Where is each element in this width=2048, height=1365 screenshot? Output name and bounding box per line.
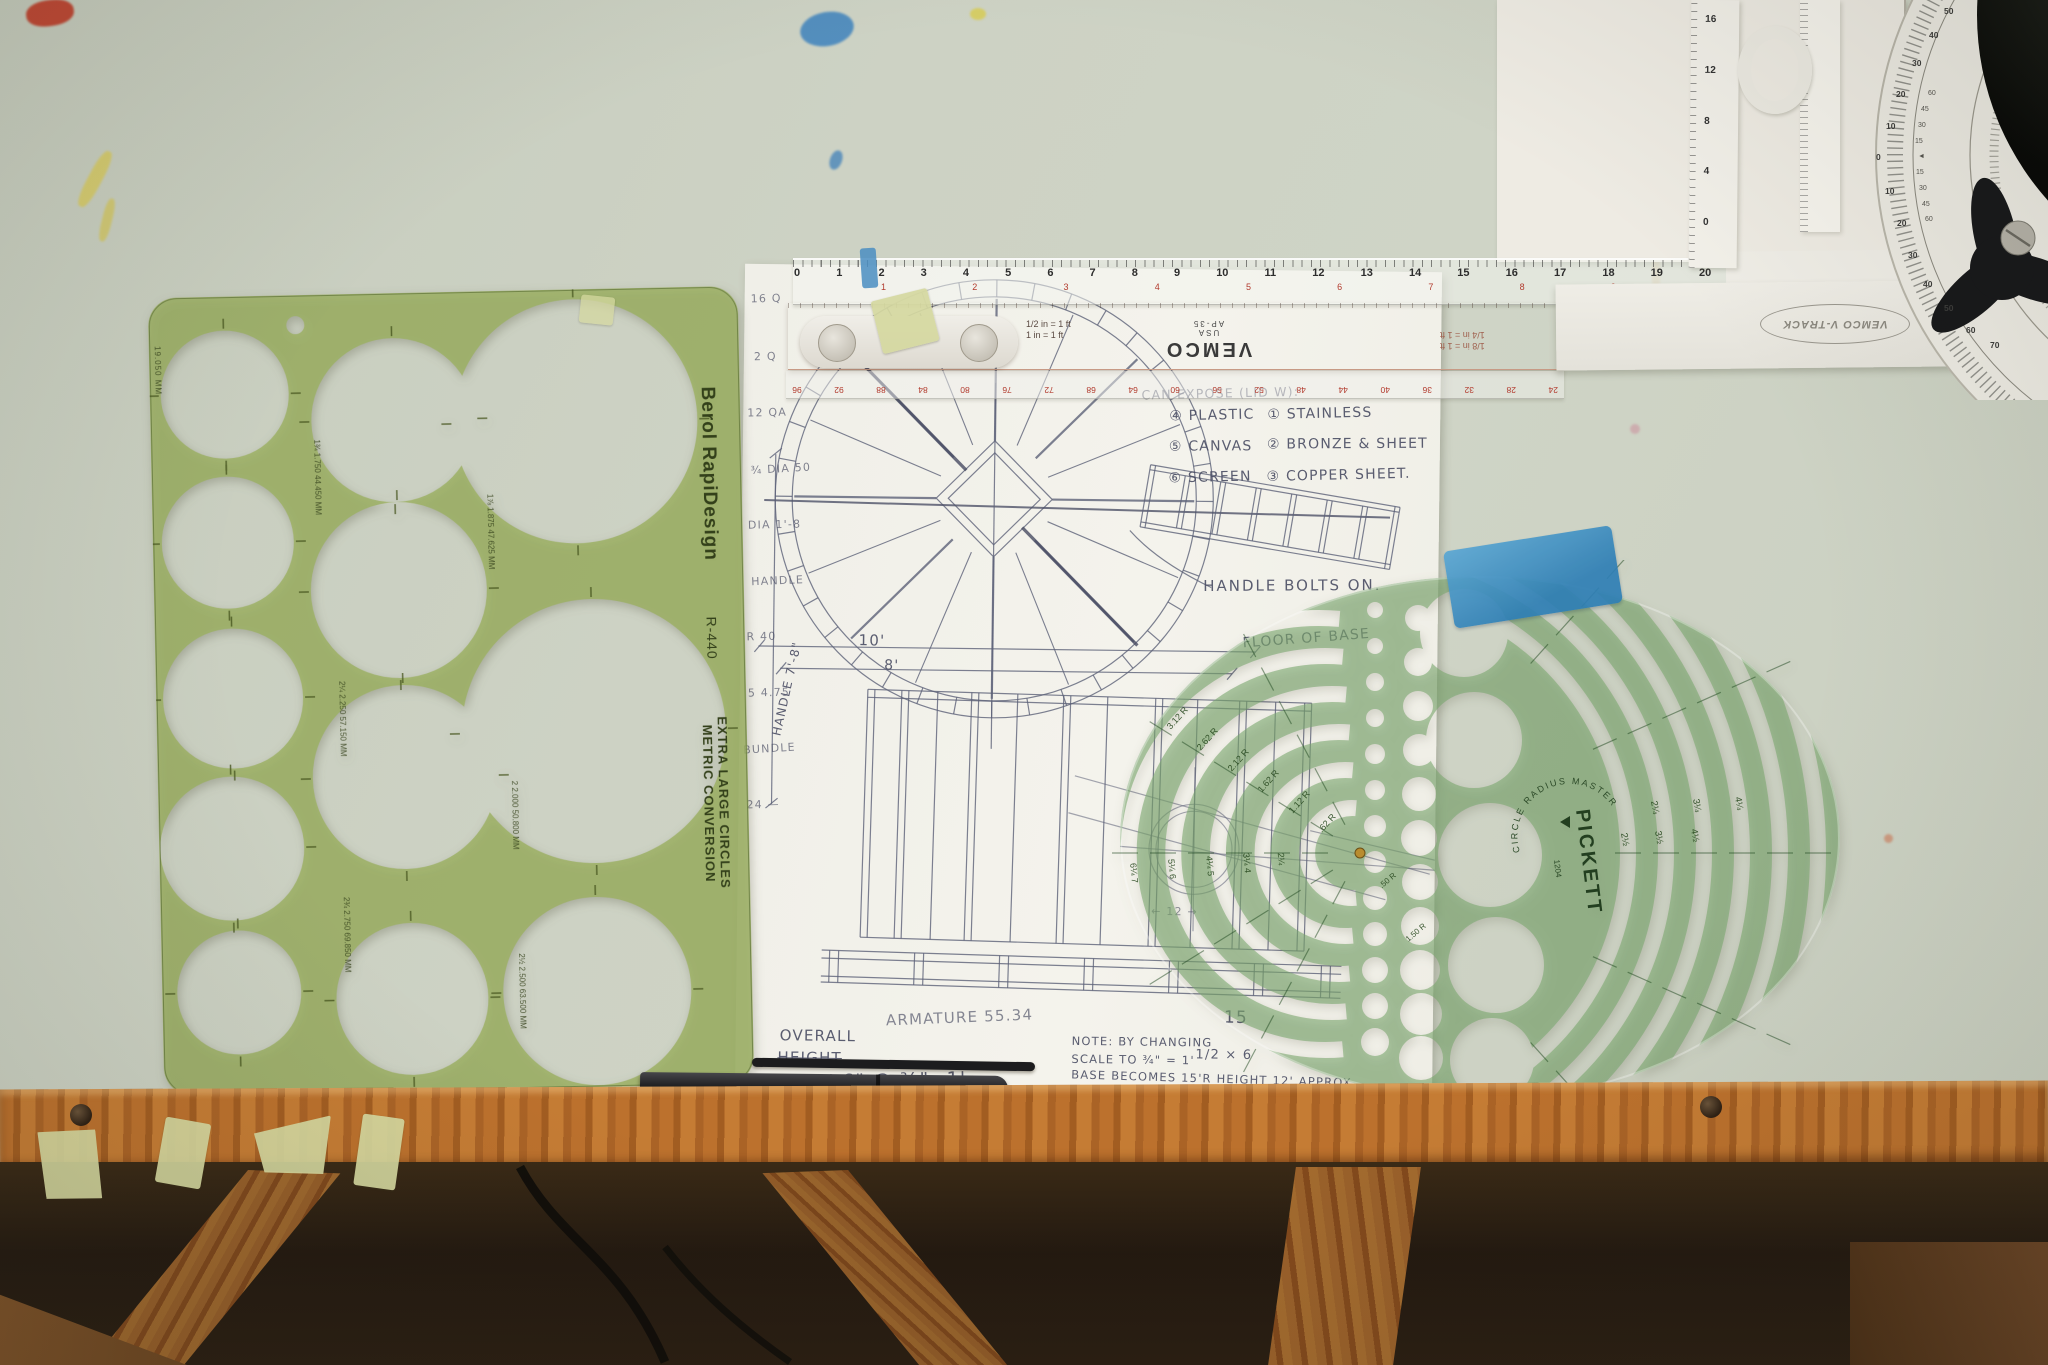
scale-number: 88 xyxy=(876,374,885,395)
scale-number: 52 xyxy=(1254,374,1263,395)
rail-screw xyxy=(70,1104,92,1126)
degree-label: 20 xyxy=(1897,218,1906,228)
vernier-label: 60 xyxy=(1925,216,1933,223)
ring-label: 2¼ xyxy=(1276,852,1287,865)
degree-label: 40 xyxy=(1929,30,1938,40)
ring-label: 3¼ xyxy=(1690,798,1703,813)
degree-label: 10 xyxy=(1885,186,1894,196)
material-item: ⑥ SCREEN xyxy=(1168,469,1254,487)
dim-8ft: 8' xyxy=(884,658,899,674)
degree-label: 40 xyxy=(1923,279,1932,289)
scale-number: 56 xyxy=(1212,374,1221,395)
size-label: 2 2.000 50.800 MM xyxy=(510,781,520,850)
materials-list-left: ④ PLASTIC⑤ CANVAS⑥ SCREEN xyxy=(1168,407,1254,501)
ruler-number-red: 6 xyxy=(1337,282,1342,292)
orange-paint-dot xyxy=(1884,834,1893,843)
vernier-label: 15 xyxy=(1915,138,1923,145)
under-table-shadow xyxy=(0,1162,2048,1365)
berol-corner-label: 19.050 MM xyxy=(153,346,163,395)
blue-paint-smudge xyxy=(797,8,856,51)
vtrack-logo-oval: VEMCO V-TRACK xyxy=(1760,304,1910,344)
ruler-number: 11 xyxy=(1265,267,1277,279)
ruler-number: 7 xyxy=(1090,267,1096,279)
scale-number: 60 xyxy=(1170,374,1179,395)
drafting-table-photo: CAN EXPOSE (LID W): ④ PLASTIC⑤ CANVAS⑥ S… xyxy=(0,0,2048,1365)
scale-number: 48 xyxy=(1296,374,1305,395)
vtrack-logo-text: VEMCO V-TRACK xyxy=(1782,318,1887,330)
floor-patch-right xyxy=(1850,1242,2048,1365)
ring-label: 3½ xyxy=(1652,830,1665,845)
inverted-bottom-scale: 24283236404448525660646872768084889296 xyxy=(786,371,1564,399)
ring-label: 5¼ 6 xyxy=(1166,859,1178,880)
degree-label: 50 xyxy=(1944,6,1953,16)
blue-paint-dot xyxy=(827,149,845,172)
yellow-paint-dot xyxy=(970,8,986,20)
degree-label: 20 xyxy=(1896,89,1905,99)
ruler-number: 8 xyxy=(1132,267,1138,279)
ruler-number: 10 xyxy=(1216,267,1228,279)
material-item: ⑤ CANVAS xyxy=(1169,438,1254,454)
margin-note: 12 QA xyxy=(747,406,787,420)
red-paint-smudge xyxy=(24,0,75,29)
size-label: 1¾ 1.750 44.450 MM xyxy=(312,439,323,515)
blue-paint-on-ruler xyxy=(860,247,879,288)
ring-label: 2½ xyxy=(1618,832,1631,847)
scale-number: 80 xyxy=(960,374,969,395)
vernier-pointer: ◄ xyxy=(1918,153,1925,160)
ruler-number: 15 xyxy=(1457,267,1469,279)
yellow-paint-smudge xyxy=(97,197,117,242)
vernier-label: 30 xyxy=(1918,122,1926,129)
degree-label: 60 xyxy=(1966,325,1975,335)
margin-note: BUNDLE xyxy=(743,741,796,757)
degree-label: 10 xyxy=(1886,121,1895,131)
vernier-label: 15 xyxy=(1916,169,1924,176)
ring-label: 6¼ 7 xyxy=(1128,863,1140,884)
material-item: ① STAINLESS xyxy=(1267,403,1428,423)
ruler-number: 17 xyxy=(1554,267,1566,279)
ruler-number: 2 xyxy=(878,267,884,279)
ruler-number-red: 5 xyxy=(1246,282,1251,292)
scale-number: 32 xyxy=(1465,374,1474,395)
scale-number: 36 xyxy=(1422,374,1431,395)
scale-ratio-left: 1/2 in = 1 ft 1 in = 1 ft xyxy=(1026,319,1071,341)
scale-number: 96 xyxy=(792,374,801,395)
ruler-number: 9 xyxy=(1174,267,1180,279)
clamp-screw xyxy=(960,324,998,362)
degree-label: 30 xyxy=(1908,250,1917,260)
size-label: 2¼ 2.250 57.150 MM xyxy=(337,681,348,757)
ruler-number-red: 4 xyxy=(1155,282,1160,292)
tape-bit-on-template xyxy=(579,294,616,325)
vemco-branding: VEMCO USA AP-35 xyxy=(1148,319,1268,360)
ruler-number: 4 xyxy=(963,267,969,279)
pink-paint-dot xyxy=(1630,424,1640,434)
margin-note: 5 4.75 xyxy=(748,686,790,700)
vemco-logo-text: VEMCO xyxy=(1148,337,1268,360)
scale-number: 24 xyxy=(1549,374,1558,395)
pickett-template-body: CIRCLE RADIUS MASTER PICKETT 1204 xyxy=(1108,560,1848,1110)
ruler-number: 18 xyxy=(1602,267,1614,279)
bench-leg xyxy=(89,1170,340,1365)
ruler-number: 13 xyxy=(1361,267,1373,279)
scale-number: 84 xyxy=(918,374,927,395)
berol-circle-template: Berol RapiDesign R-440 EXTRA LARGE CIRCL… xyxy=(148,286,755,1096)
margin-note: DIA 1'-8 xyxy=(748,518,802,532)
ruler-number-red: 1 xyxy=(881,282,886,292)
berol-template-body xyxy=(148,286,755,1096)
scale-number: 68 xyxy=(1086,374,1095,395)
ruler-number-red: 8 xyxy=(1520,282,1525,292)
ruler-number: 5 xyxy=(1005,267,1011,279)
degree-label: 30 xyxy=(1912,58,1921,68)
scale-number: 64 xyxy=(1128,374,1137,395)
material-item: ② BRONZE & SHEET xyxy=(1267,436,1428,453)
overall-label-1: OVERALL xyxy=(780,1026,857,1045)
vernier-label: 60 xyxy=(1928,90,1936,97)
scale-number: 40 xyxy=(1380,374,1389,395)
ruler-number-red: 3 xyxy=(1063,282,1068,292)
ring-label: 3¼ 4 xyxy=(1241,853,1253,874)
size-label: 1⅞ 1.875 47.625 MM xyxy=(485,494,496,570)
scale-ratio-text: 1/8 in = 1 ft xyxy=(1440,340,1485,351)
scale-number: 28 xyxy=(1507,374,1516,395)
vernier-label: 30 xyxy=(1919,185,1927,192)
vemco-model: AP-35 xyxy=(1148,319,1268,328)
dim-10ft: 10' xyxy=(858,631,885,649)
scale-number: 92 xyxy=(834,374,843,395)
degree-label: 50 xyxy=(1944,303,1953,313)
size-label: 2½ 2.500 63.500 MM xyxy=(517,953,528,1029)
ring-label: 4½ xyxy=(1688,828,1701,843)
power-cable xyxy=(420,1162,1320,1365)
vemco-country: USA xyxy=(1148,328,1268,337)
scale-ratio-right: 1/8 in = 1 ft 1/4 in = 1 ft xyxy=(1440,329,1485,351)
berol-brand: Berol RapiDesign xyxy=(696,386,722,561)
material-item: ③ COPPER SHEET. xyxy=(1266,465,1427,485)
ruler-number: 3 xyxy=(921,267,927,279)
ruler-number: 12 xyxy=(1312,267,1324,279)
margin-note: 2 Q xyxy=(754,350,777,364)
margin-note: ¾ DIA 50 xyxy=(750,460,811,476)
margin-note: 24 — xyxy=(746,798,780,812)
ruler-number: 1 xyxy=(836,267,842,279)
degree-label: 70 xyxy=(1990,340,1999,350)
ruler-number-red: 7 xyxy=(1428,282,1433,292)
pickett-circle-template: CIRCLE RADIUS MASTER PICKETT 1204 xyxy=(1108,560,1848,1110)
scale-number: 44 xyxy=(1338,374,1347,395)
ruler-number: 16 xyxy=(1506,267,1518,279)
inverted-scale-numbers: 24283236404448525660646872768084889296 xyxy=(792,374,1558,395)
ring-label: 4¼ 5 xyxy=(1204,856,1216,877)
ring-label: 2¼ xyxy=(1648,800,1661,815)
scale-number: 72 xyxy=(1044,374,1053,395)
vernier-label: 45 xyxy=(1921,106,1929,113)
clamp-screw xyxy=(818,324,856,362)
scale-ratio-text: 1/4 in = 1 ft xyxy=(1440,329,1485,340)
ruler-number: 6 xyxy=(1047,267,1053,279)
materials-list-right: ① STAINLESS② BRONZE & SHEET③ COPPER SHEE… xyxy=(1266,404,1428,499)
pivot-rivet xyxy=(1355,848,1365,858)
margin-note: 16 Q xyxy=(751,292,782,306)
berol-model: R-440 xyxy=(703,616,720,659)
margin-note: HANDLE xyxy=(751,573,804,588)
vernier-label: 45 xyxy=(1922,201,1930,208)
ruler-number: 0 xyxy=(794,267,800,279)
rail-screw xyxy=(1700,1096,1722,1118)
margin-note: R 40 xyxy=(746,630,776,644)
ruler-number-red: 2 xyxy=(972,282,977,292)
size-label: 2¾ 2.750 69.850 MM xyxy=(342,897,353,973)
degree-label: 0 xyxy=(1876,152,1881,162)
scale-number: 76 xyxy=(1002,374,1011,395)
scale-ratio-text: 1/2 in = 1 ft xyxy=(1026,319,1071,330)
scale-ratio-text: 1 in = 1 ft xyxy=(1026,330,1071,341)
ruler-number: 19 xyxy=(1651,267,1663,279)
ring-label: 4¼ xyxy=(1732,796,1745,811)
material-item: ④ PLASTIC xyxy=(1169,407,1255,425)
ruler-number: 14 xyxy=(1409,267,1421,279)
